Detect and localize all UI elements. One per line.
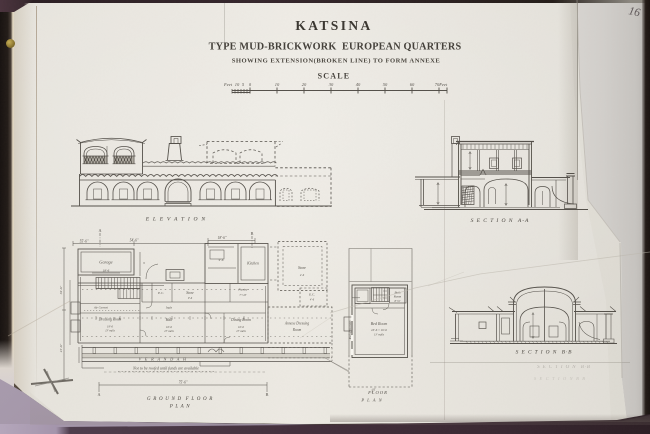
svg-text:SCALE: SCALE bbox=[318, 72, 351, 81]
svg-text:34'-6": 34'-6" bbox=[59, 285, 63, 294]
svg-text:Hall: Hall bbox=[165, 318, 173, 322]
svg-text:60: 60 bbox=[410, 82, 415, 87]
svg-text:S E C T I O N B·B: S E C T I O N B·B bbox=[516, 350, 573, 356]
svg-text:P L A N: P L A N bbox=[169, 405, 191, 410]
svg-text:18'-6: 18'-6 bbox=[103, 269, 110, 273]
svg-text:A: A bbox=[98, 228, 101, 233]
svg-text:Kitchen: Kitchen bbox=[246, 262, 259, 266]
svg-text:16: 16 bbox=[627, 5, 641, 19]
svg-text:Store: Store bbox=[298, 266, 306, 270]
svg-text:Store: Store bbox=[186, 291, 194, 295]
svg-text:G R O U N D F L O O R: G R O U N D F L O O R bbox=[147, 397, 213, 402]
svg-text:8'×6': 8'×6' bbox=[395, 300, 401, 303]
svg-text:A: A bbox=[97, 392, 100, 397]
svg-text:Dining Room: Dining Room bbox=[230, 318, 251, 322]
svg-text:9'-6: 9'-6 bbox=[188, 297, 193, 300]
svg-text:16'-6 × 16'-6: 16'-6 × 16'-6 bbox=[371, 328, 387, 332]
svg-text:70Feet: 70Feet bbox=[435, 82, 448, 87]
svg-text:B: B bbox=[266, 392, 269, 397]
svg-text:16'-6: 16'-6 bbox=[238, 325, 244, 329]
svg-text:9: 9 bbox=[143, 261, 145, 265]
svg-text:KATSINA: KATSINA bbox=[295, 18, 372, 33]
svg-text:Annexe Dressing: Annexe Dressing bbox=[284, 322, 310, 326]
svg-text:41'-6": 41'-6" bbox=[59, 343, 63, 352]
svg-text:10: 10 bbox=[235, 82, 240, 87]
svg-text:30: 30 bbox=[329, 82, 334, 87]
svg-text:18'-6": 18'-6" bbox=[218, 236, 227, 240]
svg-text:S E C T I O N B B: S E C T I O N B B bbox=[534, 376, 586, 381]
svg-text:E L E V A T I O N: E L E V A T I O N bbox=[145, 217, 207, 223]
svg-text:75'-6": 75'-6" bbox=[179, 381, 188, 385]
svg-text:20: 20 bbox=[302, 82, 307, 87]
svg-text:5: 5 bbox=[242, 82, 245, 87]
svg-text:Feet: Feet bbox=[223, 82, 233, 87]
svg-text:4'-6: 4'-6 bbox=[300, 274, 305, 277]
svg-text:E.C.: E.C. bbox=[308, 293, 315, 297]
svg-text:16'-6: 16'-6 bbox=[166, 325, 172, 329]
svg-text:Air Current: Air Current bbox=[93, 306, 108, 310]
svg-text:S E C T I O N A-A: S E C T I O N A-A bbox=[471, 218, 530, 224]
svg-text:Garage: Garage bbox=[99, 260, 112, 265]
svg-text:B: B bbox=[251, 231, 254, 236]
svg-text:50: 50 bbox=[383, 82, 388, 87]
svg-text:Bed Room: Bed Room bbox=[371, 321, 388, 326]
svg-text:0: 0 bbox=[249, 82, 252, 87]
svg-text:7'×10': 7'×10' bbox=[239, 294, 247, 297]
svg-text:E.C.: E.C. bbox=[157, 291, 164, 295]
svg-text:S E C T I O N B·B: S E C T I O N B·B bbox=[537, 365, 591, 370]
svg-text:V E R A N D A H: V E R A N D A H bbox=[139, 356, 188, 361]
svg-text:FLOOR: FLOOR bbox=[367, 390, 388, 395]
svg-text:Room: Room bbox=[393, 295, 402, 299]
svg-text:54'-6": 54'-6" bbox=[130, 239, 139, 243]
svg-text:Ingle: Ingle bbox=[165, 306, 173, 310]
svg-text:TYPE MUD-BRICKWORK EUROPEAN Q: TYPE MUD-BRICKWORK EUROPEAN QUARTERS bbox=[209, 42, 462, 53]
svg-text:P L A N: P L A N bbox=[360, 398, 382, 403]
svg-text:Room: Room bbox=[292, 328, 302, 332]
svg-text:SHOWING EXTENSION(BROKEN LINE): SHOWING EXTENSION(BROKEN LINE) TO FORM A… bbox=[232, 58, 441, 65]
svg-text:13' walls: 13' walls bbox=[236, 330, 246, 333]
svg-text:13' walls: 13' walls bbox=[105, 330, 115, 333]
svg-text:Not to be roofed until funds a: Not to be roofed until funds are availab… bbox=[132, 366, 199, 371]
svg-text:40: 40 bbox=[356, 82, 361, 87]
svg-text:55'-6": 55'-6" bbox=[80, 240, 89, 244]
svg-text:10: 10 bbox=[275, 82, 280, 87]
svg-text:ST: ST bbox=[372, 388, 376, 392]
svg-text:9'-6: 9'-6 bbox=[219, 258, 224, 262]
svg-text:13' walls: 13' walls bbox=[164, 330, 174, 333]
svg-text:19'-6: 19'-6 bbox=[107, 325, 113, 329]
svg-text:4'-6: 4'-6 bbox=[310, 299, 315, 302]
svg-text:13' walls: 13' walls bbox=[374, 334, 384, 337]
